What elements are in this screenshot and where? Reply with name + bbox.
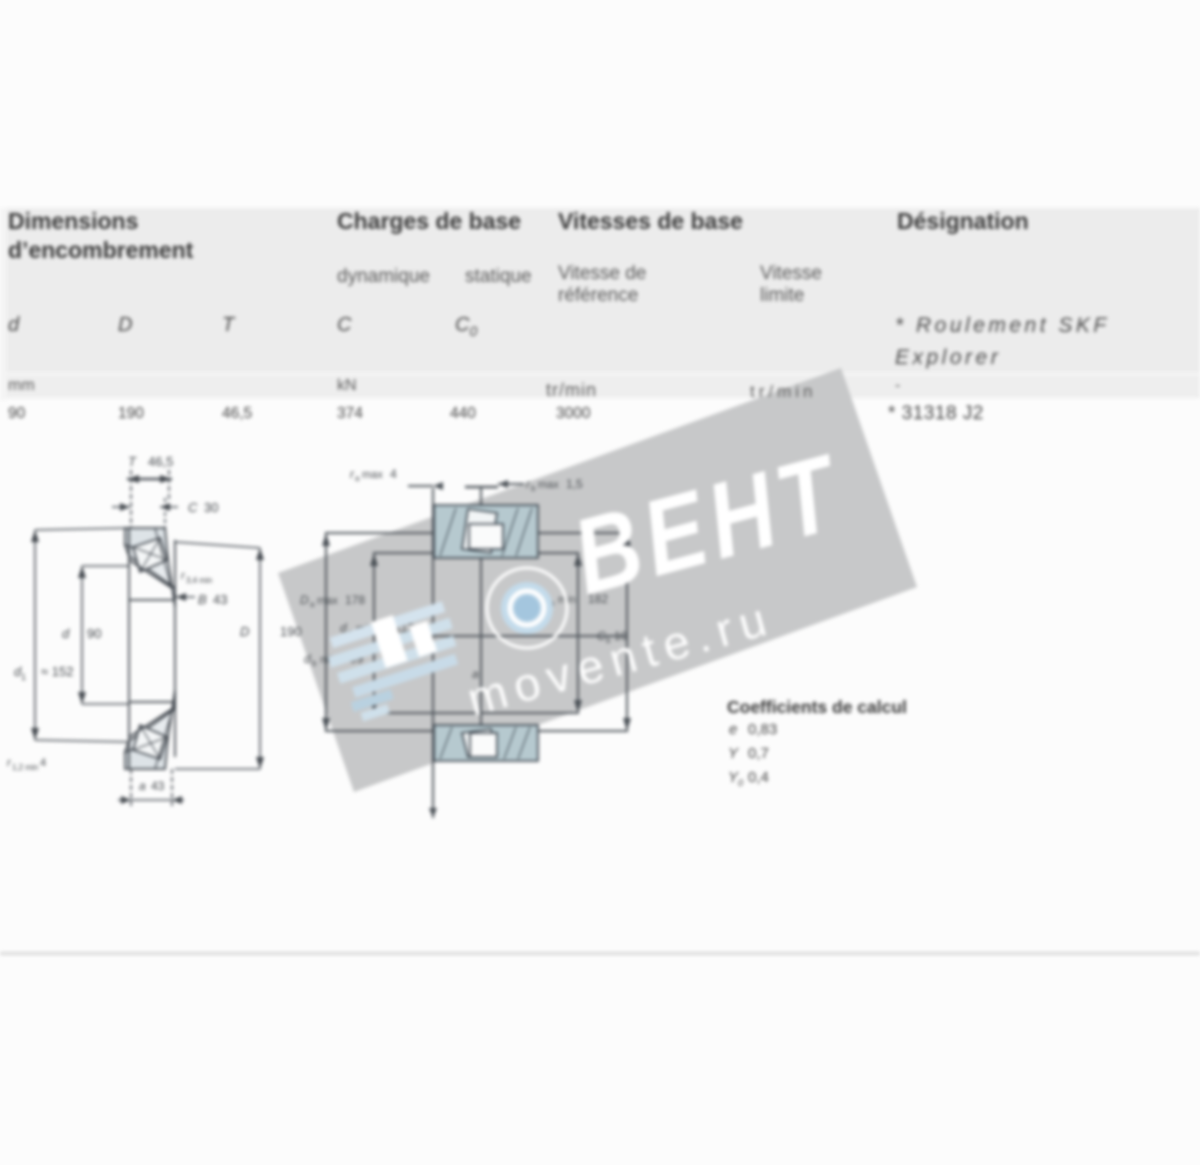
svg-text:ВЕНТ: ВЕНТ [561,432,854,617]
